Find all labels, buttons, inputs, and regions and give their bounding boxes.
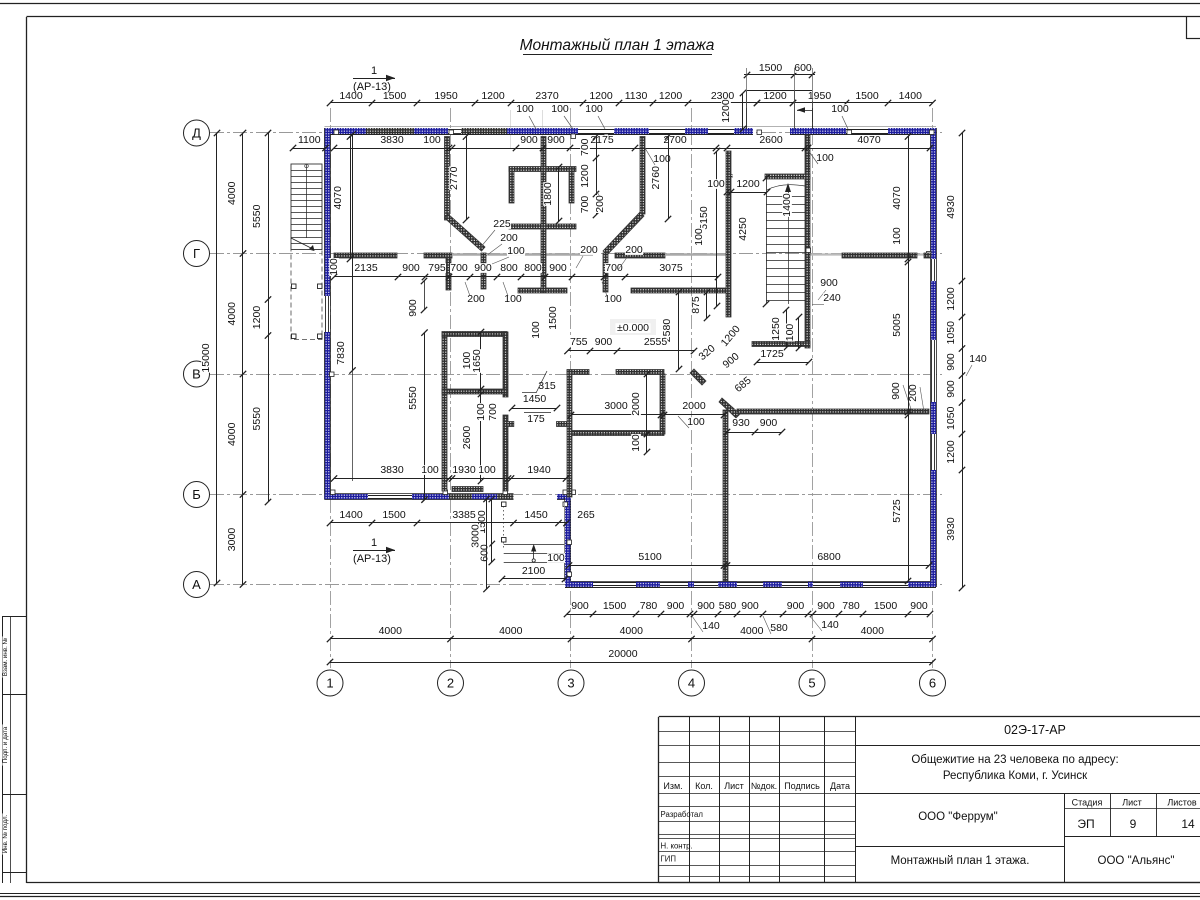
svg-text:700: 700	[487, 403, 499, 421]
svg-text:4930: 4930	[945, 195, 957, 219]
svg-text:4070: 4070	[332, 186, 344, 210]
svg-text:2700: 2700	[663, 134, 687, 146]
svg-text:100: 100	[707, 178, 725, 190]
svg-text:1: 1	[371, 65, 377, 77]
svg-text:Республика Коми, г. Усинск: Республика Коми, г. Усинск	[943, 770, 1088, 782]
svg-text:Н. контр.: Н. контр.	[661, 842, 693, 851]
svg-text:4070: 4070	[857, 134, 881, 146]
svg-text:3000: 3000	[604, 400, 628, 412]
svg-text:2600: 2600	[461, 426, 473, 450]
svg-text:1200: 1200	[659, 90, 683, 102]
svg-text:100: 100	[547, 552, 565, 564]
svg-text:100: 100	[421, 464, 439, 476]
svg-text:2760: 2760	[650, 166, 662, 190]
svg-text:2135: 2135	[354, 262, 378, 274]
svg-text:140: 140	[821, 619, 839, 631]
svg-text:800: 800	[500, 262, 518, 274]
svg-text:100: 100	[693, 228, 705, 246]
svg-text:(АР-13): (АР-13)	[353, 81, 391, 93]
svg-text:1400: 1400	[781, 193, 793, 217]
svg-text:900: 900	[890, 382, 902, 400]
svg-text:А: А	[192, 577, 201, 592]
svg-text:±0.000: ±0.000	[617, 322, 649, 334]
svg-text:15000: 15000	[200, 343, 212, 372]
svg-text:900: 900	[787, 600, 805, 612]
svg-text:1930: 1930	[452, 464, 476, 476]
svg-text:Лист: Лист	[724, 781, 744, 791]
svg-text:5550: 5550	[407, 386, 419, 410]
svg-text:100: 100	[551, 103, 569, 115]
svg-text:ГИП: ГИП	[661, 855, 676, 864]
svg-text:1050: 1050	[945, 406, 957, 430]
svg-text:2370: 2370	[535, 90, 559, 102]
svg-text:3830: 3830	[380, 464, 404, 476]
svg-text:1: 1	[326, 676, 333, 691]
svg-text:ООО "Альянс": ООО "Альянс"	[1098, 855, 1175, 867]
svg-text:900: 900	[520, 134, 538, 146]
svg-text:Стадия: Стадия	[1072, 798, 1103, 808]
svg-text:900: 900	[760, 417, 778, 429]
svg-text:780: 780	[842, 600, 860, 612]
svg-text:2: 2	[447, 676, 454, 691]
svg-text:780: 780	[640, 600, 658, 612]
svg-text:2770: 2770	[448, 166, 460, 190]
svg-text:2100: 2100	[522, 565, 546, 577]
svg-text:1500: 1500	[382, 509, 406, 521]
svg-text:Дата: Дата	[830, 781, 850, 791]
svg-text:4000: 4000	[379, 625, 403, 637]
svg-text:100: 100	[891, 227, 903, 245]
svg-text:100: 100	[478, 464, 496, 476]
svg-text:1500: 1500	[759, 62, 783, 74]
svg-text:6: 6	[929, 676, 936, 691]
svg-text:3075: 3075	[659, 262, 683, 274]
svg-text:700: 700	[450, 262, 468, 274]
svg-text:1950: 1950	[808, 90, 832, 102]
svg-text:200: 200	[625, 244, 643, 256]
svg-text:1400: 1400	[339, 509, 363, 521]
svg-text:2000: 2000	[630, 392, 642, 416]
svg-text:(АР-13): (АР-13)	[353, 553, 391, 565]
svg-text:1500: 1500	[855, 90, 879, 102]
svg-text:5550: 5550	[251, 204, 263, 228]
svg-text:1250: 1250	[770, 317, 782, 341]
svg-text:900: 900	[571, 600, 589, 612]
svg-text:Взам. инв. №: Взам. инв. №	[2, 637, 9, 676]
svg-text:175: 175	[527, 413, 545, 425]
svg-text:1450: 1450	[524, 509, 548, 521]
svg-text:4: 4	[688, 676, 695, 691]
svg-text:2175: 2175	[590, 134, 614, 146]
svg-text:1400: 1400	[899, 90, 923, 102]
svg-text:700: 700	[579, 138, 591, 156]
svg-text:ЭП: ЭП	[1077, 817, 1094, 831]
svg-text:900: 900	[402, 262, 420, 274]
svg-text:875: 875	[690, 296, 702, 314]
svg-text:4000: 4000	[740, 625, 764, 637]
svg-text:1500: 1500	[874, 600, 898, 612]
svg-text:4000: 4000	[226, 422, 238, 446]
svg-text:3930: 3930	[945, 517, 957, 541]
svg-text:1500: 1500	[547, 306, 559, 330]
svg-text:100: 100	[504, 293, 522, 305]
svg-text:800: 800	[524, 262, 542, 274]
svg-text:1950: 1950	[434, 90, 458, 102]
svg-text:1500: 1500	[603, 600, 627, 612]
svg-text:1: 1	[371, 537, 377, 549]
svg-text:Б: Б	[192, 487, 201, 502]
svg-text:755: 755	[570, 336, 588, 348]
svg-text:Г: Г	[193, 246, 200, 261]
svg-text:1050: 1050	[945, 321, 957, 345]
svg-text:Изм.: Изм.	[663, 781, 682, 791]
svg-text:900: 900	[407, 299, 419, 317]
svg-text:100: 100	[507, 245, 525, 257]
svg-text:2600: 2600	[759, 134, 783, 146]
svg-text:100: 100	[423, 134, 441, 146]
svg-text:200: 200	[580, 244, 598, 256]
svg-text:900: 900	[817, 600, 835, 612]
svg-text:100: 100	[585, 103, 603, 115]
svg-text:9: 9	[1130, 817, 1137, 831]
svg-text:1800: 1800	[542, 182, 554, 206]
svg-text:1130: 1130	[625, 90, 648, 102]
svg-text:14: 14	[1181, 817, 1195, 831]
svg-text:100: 100	[784, 324, 796, 342]
svg-text:Монтажный план 1 этажа.: Монтажный план 1 этажа.	[891, 855, 1030, 867]
svg-text:140: 140	[702, 620, 720, 632]
svg-text:1200: 1200	[763, 90, 787, 102]
svg-text:Подпись: Подпись	[784, 781, 820, 791]
svg-text:900: 900	[697, 600, 715, 612]
svg-text:3830: 3830	[380, 134, 404, 146]
svg-text:900: 900	[741, 600, 759, 612]
svg-text:200: 200	[500, 232, 518, 244]
svg-text:4000: 4000	[861, 625, 885, 637]
svg-text:20000: 20000	[608, 648, 637, 660]
svg-text:900: 900	[910, 600, 928, 612]
svg-text:225: 225	[493, 218, 511, 230]
svg-text:900: 900	[547, 134, 565, 146]
svg-text:580: 580	[719, 600, 737, 612]
svg-text:Подп. и дата: Подп. и дата	[2, 726, 9, 763]
svg-text:900: 900	[474, 262, 492, 274]
svg-text:900: 900	[820, 277, 838, 289]
svg-text:4000: 4000	[226, 181, 238, 205]
svg-text:ООО "Феррум": ООО "Феррум"	[918, 811, 998, 823]
svg-text:Д: Д	[192, 126, 201, 141]
svg-text:1200: 1200	[251, 306, 263, 330]
svg-text:900: 900	[945, 380, 957, 398]
svg-text:1200: 1200	[945, 287, 957, 311]
svg-text:1650: 1650	[471, 349, 483, 373]
svg-text:930: 930	[732, 417, 750, 429]
svg-text:4070: 4070	[891, 186, 903, 210]
svg-text:100: 100	[328, 258, 340, 276]
svg-text:100: 100	[630, 434, 642, 452]
svg-text:795: 795	[428, 262, 446, 274]
svg-text:100: 100	[516, 103, 534, 115]
svg-text:Монтажный план 1 этажа: Монтажный план 1 этажа	[520, 37, 715, 54]
svg-text:02Э-17-АР: 02Э-17-АР	[1004, 723, 1066, 737]
svg-text:5150: 5150	[698, 206, 710, 230]
svg-text:Разработал: Разработал	[661, 810, 704, 819]
svg-text:2555: 2555	[644, 336, 668, 348]
svg-text:700: 700	[579, 196, 591, 214]
svg-text:900: 900	[667, 600, 685, 612]
svg-text:4000: 4000	[226, 302, 238, 326]
svg-text:4000: 4000	[620, 625, 644, 637]
svg-text:1200: 1200	[579, 164, 591, 188]
svg-text:1725: 1725	[760, 348, 784, 360]
svg-text:3385: 3385	[452, 509, 476, 521]
svg-text:5100: 5100	[638, 551, 662, 563]
svg-text:315: 315	[538, 380, 556, 392]
svg-text:580: 580	[770, 622, 788, 634]
svg-text:5725: 5725	[891, 499, 903, 523]
svg-text:3000: 3000	[226, 528, 238, 552]
svg-text:900: 900	[945, 353, 957, 371]
svg-text:100: 100	[475, 403, 487, 421]
svg-text:900: 900	[549, 262, 567, 274]
svg-text:100: 100	[530, 321, 542, 339]
svg-text:1200: 1200	[589, 90, 613, 102]
svg-text:4000: 4000	[499, 625, 523, 637]
svg-text:№док.: №док.	[751, 781, 777, 791]
svg-text:7830: 7830	[335, 341, 347, 365]
svg-text:6800: 6800	[817, 551, 841, 563]
svg-text:100: 100	[831, 103, 849, 115]
svg-text:1200: 1200	[945, 440, 957, 464]
svg-text:3000: 3000	[470, 524, 482, 548]
svg-text:100: 100	[687, 416, 705, 428]
svg-text:4250: 4250	[737, 217, 749, 241]
svg-text:900: 900	[595, 336, 613, 348]
svg-text:600: 600	[794, 62, 812, 74]
svg-text:1200: 1200	[481, 90, 505, 102]
svg-text:Листов: Листов	[1167, 798, 1196, 808]
svg-text:5: 5	[808, 676, 815, 691]
svg-text:200: 200	[594, 195, 606, 213]
svg-text:Кол.: Кол.	[695, 781, 713, 791]
svg-text:5005: 5005	[891, 313, 903, 337]
svg-text:Лист: Лист	[1122, 798, 1142, 808]
svg-text:3: 3	[567, 676, 574, 691]
svg-text:1450: 1450	[523, 393, 547, 405]
svg-text:1200: 1200	[736, 178, 760, 190]
svg-text:5550: 5550	[251, 407, 263, 431]
svg-text:1100: 1100	[298, 134, 321, 146]
svg-text:700: 700	[605, 262, 623, 274]
svg-text:Общежитие на 23 человека по ад: Общежитие на 23 человека по адресу:	[911, 754, 1118, 766]
svg-text:1200: 1200	[720, 99, 732, 123]
svg-text:1940: 1940	[527, 464, 551, 476]
svg-text:Инв. № подл.: Инв. № подл.	[2, 814, 9, 853]
svg-text:100: 100	[816, 152, 834, 164]
svg-text:240: 240	[823, 292, 841, 304]
svg-text:265: 265	[577, 509, 595, 521]
svg-text:140: 140	[969, 353, 987, 365]
svg-text:2000: 2000	[682, 400, 706, 412]
